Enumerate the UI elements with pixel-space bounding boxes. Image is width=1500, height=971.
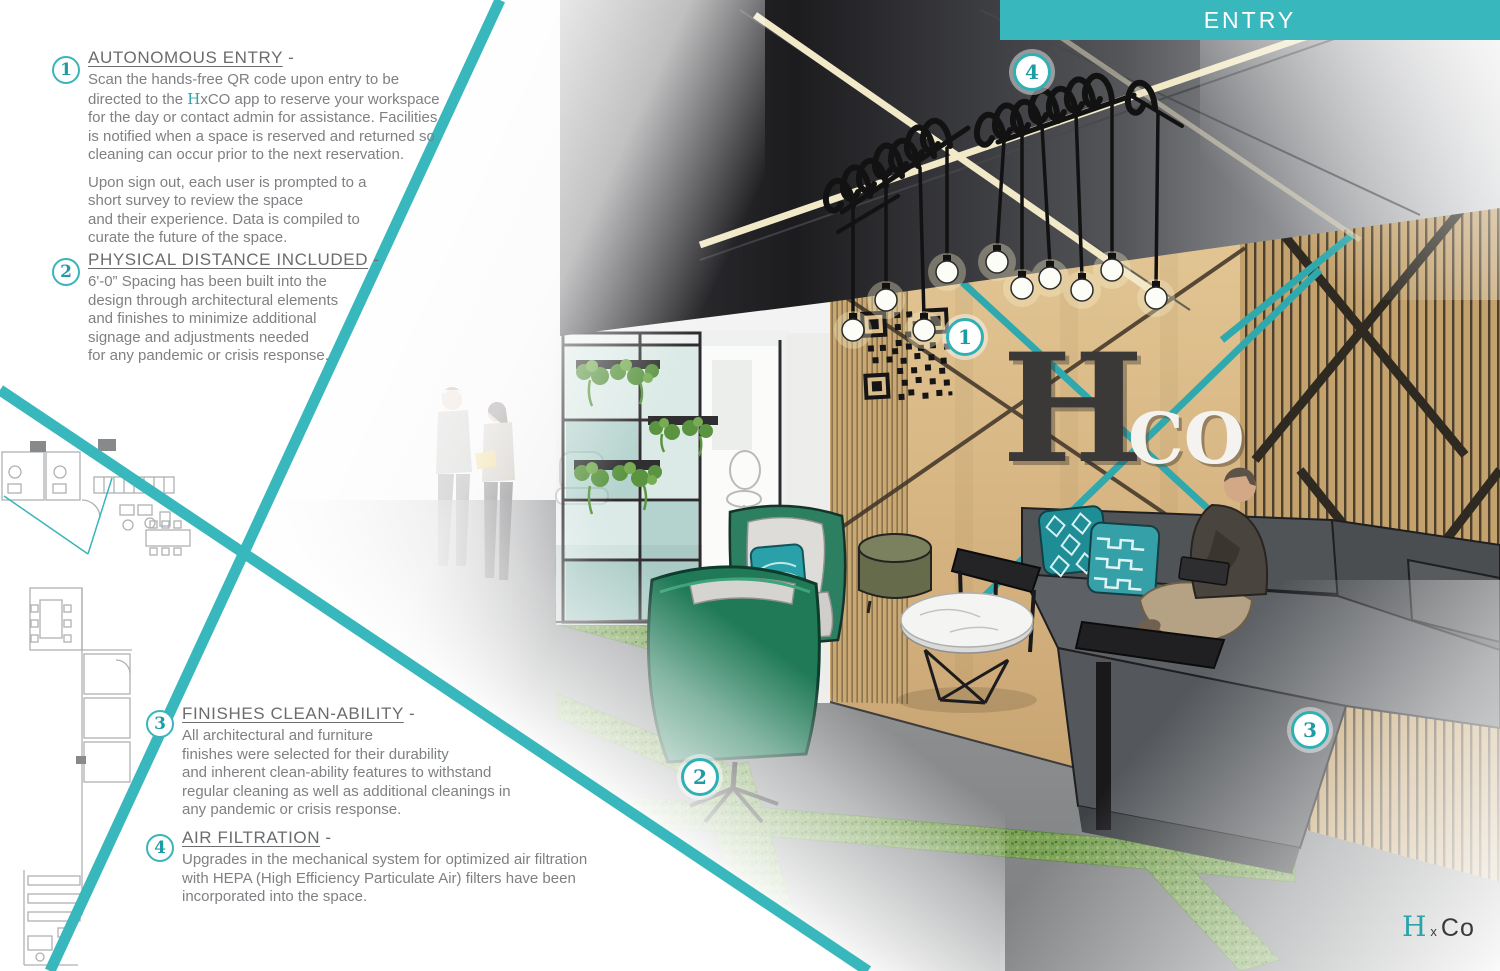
logo-x: x (1430, 924, 1437, 939)
plan-view-cone (4, 478, 112, 554)
note-2-title: PHYSICAL DISTANCE INCLUDED - (88, 250, 488, 270)
note-2-number: 2 (52, 258, 80, 286)
hxco-logo: H x Co (1402, 910, 1475, 943)
note-1-paragraph-2: Upon sign out, each user is prompted to … (88, 174, 508, 248)
banner-title: ENTRY (1204, 7, 1297, 34)
scene-marker-2: 2 (681, 758, 719, 796)
note-physical-distance: PHYSICAL DISTANCE INCLUDED - 6'-0” Spaci… (88, 250, 488, 366)
section-banner: ENTRY (1000, 0, 1500, 40)
logo-co: Co (1441, 914, 1475, 943)
note-4-title: AIR FILTRATION - (182, 828, 662, 848)
note-3-title: FINISHES CLEAN-ABILITY - (182, 704, 612, 724)
floor-plan (2, 439, 190, 965)
note-autonomous-entry: AUTONOMOUS ENTRY - Scan the hands-free Q… (88, 48, 508, 248)
note-3-paragraph: All architectural and furniture finishes… (182, 727, 612, 820)
note-2-paragraph: 6'-0” Spacing has been built into the de… (88, 273, 488, 366)
scene-marker-3: 3 (1291, 711, 1329, 749)
note-1-number: 1 (52, 56, 80, 84)
scene-marker-1: 1 (946, 318, 984, 356)
brand-h-inline: H (187, 90, 200, 108)
note-1-title: AUTONOMOUS ENTRY - (88, 48, 508, 68)
scene-marker-4: 4 (1013, 53, 1051, 91)
note-4-number: 4 (146, 834, 174, 862)
logo-h: H (1402, 910, 1426, 943)
wall-letter-h: H (1002, 321, 1144, 497)
note-air-filtration: AIR FILTRATION - Upgrades in the mechani… (182, 828, 662, 907)
note-4-paragraph: Upgrades in the mechanical system for op… (182, 851, 662, 907)
note-finishes-cleanability: FINISHES CLEAN-ABILITY - All architectur… (182, 704, 612, 820)
presentation-board: H H CO CO (0, 0, 1500, 971)
wall-letters-co: CO (1128, 397, 1245, 480)
note-1-paragraph-1: Scan the hands-free QR code upon entry t… (88, 71, 508, 165)
note-3-number: 3 (146, 710, 174, 738)
